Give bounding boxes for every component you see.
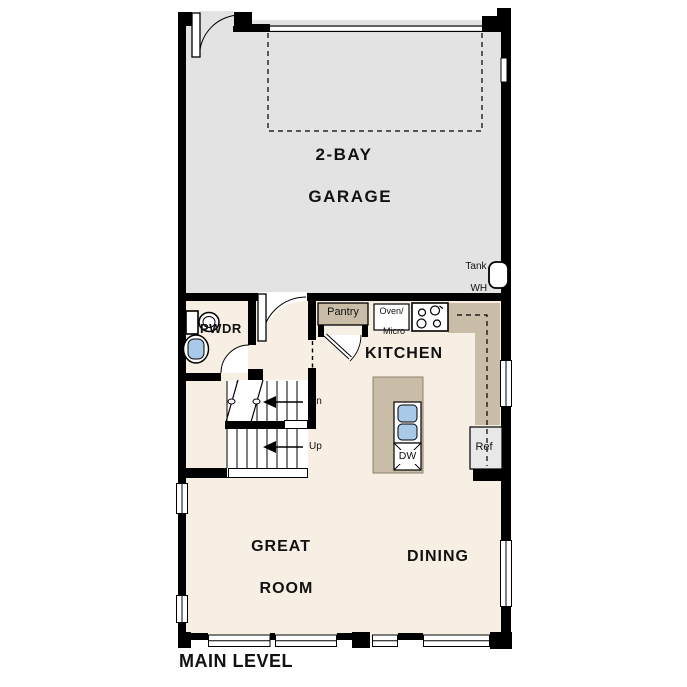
floor-plan: 2-BAY GARAGE Tank WH PWDR Pantry Oven/ M… <box>0 0 687 687</box>
cooktop-body <box>412 303 448 331</box>
toilet-tank <box>186 311 198 334</box>
pantry-label: Pantry <box>327 306 359 318</box>
dishwasher-label: DW <box>399 450 417 462</box>
dining-label: DINING <box>407 546 469 567</box>
stair-landing-edge <box>285 421 308 429</box>
entry-door-leaf <box>192 13 200 57</box>
stairs-up-label: Up <box>309 441 322 452</box>
water-heater <box>489 262 508 288</box>
level-title: MAIN LEVEL <box>179 651 293 672</box>
oven-micro-label-line1: Oven/ <box>379 306 403 316</box>
kitchen-label: KITCHEN <box>365 345 443 363</box>
powder-sink-bowl <box>188 339 204 359</box>
left-exterior-wall <box>178 12 186 648</box>
bottom-wall-segment <box>398 633 423 640</box>
cooktop <box>412 303 448 331</box>
stairs-down-label: Dn <box>309 396 322 407</box>
ref-wall-stub <box>473 469 511 481</box>
stair-landing-wall <box>225 421 285 429</box>
garage-label-line2: GARAGE <box>308 187 392 206</box>
powder-sink <box>184 335 209 363</box>
bottom-wall-segment <box>337 633 352 640</box>
tank-label-line2: WH <box>470 283 487 294</box>
stair-bottom-wall <box>183 468 228 478</box>
top-wall-segment <box>252 24 270 32</box>
powder-bottom-wall <box>183 373 221 381</box>
garage-wall-right <box>307 293 501 301</box>
right-wall-notch <box>501 58 507 82</box>
oven-micro-label: Oven/ Micro <box>378 306 405 336</box>
entry-door-opening <box>199 11 234 26</box>
stairs <box>225 380 308 478</box>
pantry-right-jamb <box>362 325 368 337</box>
hall-wall-upper <box>308 293 316 340</box>
powder-room-label: PWDR <box>200 321 242 336</box>
great-room-label-line1: GREAT <box>251 538 311 555</box>
tank-label-line1: Tank <box>465 261 486 272</box>
water-heater-label: Tank WH <box>465 261 487 294</box>
bottom-wall-segment <box>190 633 208 640</box>
sink-basin-top <box>398 405 417 422</box>
garage-wall-left <box>183 293 258 301</box>
counter-top-run <box>448 303 500 333</box>
powder-right-wall <box>248 293 256 345</box>
sink-basin-bottom <box>398 424 417 440</box>
oven-micro-label-line2: Micro <box>383 326 405 336</box>
great-room-label: GREAT ROOM <box>249 536 314 599</box>
bottom-wall-mullion <box>270 633 275 640</box>
top-left-corner-wall <box>178 12 192 26</box>
garage-hall-door-leaf <box>258 294 266 341</box>
garage-label: 2-BAY GARAGE <box>296 144 392 207</box>
bottom-left-corner-wall <box>178 632 191 648</box>
garage-label-line1: 2-BAY <box>316 145 373 164</box>
powder-corner-stub <box>248 369 263 381</box>
stair-bottom-edge <box>229 469 308 478</box>
great-room-label-line2: ROOM <box>260 580 314 597</box>
pantry-left-jamb <box>318 325 324 337</box>
refrigerator-label: Ref <box>475 441 492 453</box>
bottom-wall-pier <box>352 632 370 648</box>
floor-plan-drawing <box>0 0 687 687</box>
bottom-right-corner-wall <box>490 632 512 649</box>
